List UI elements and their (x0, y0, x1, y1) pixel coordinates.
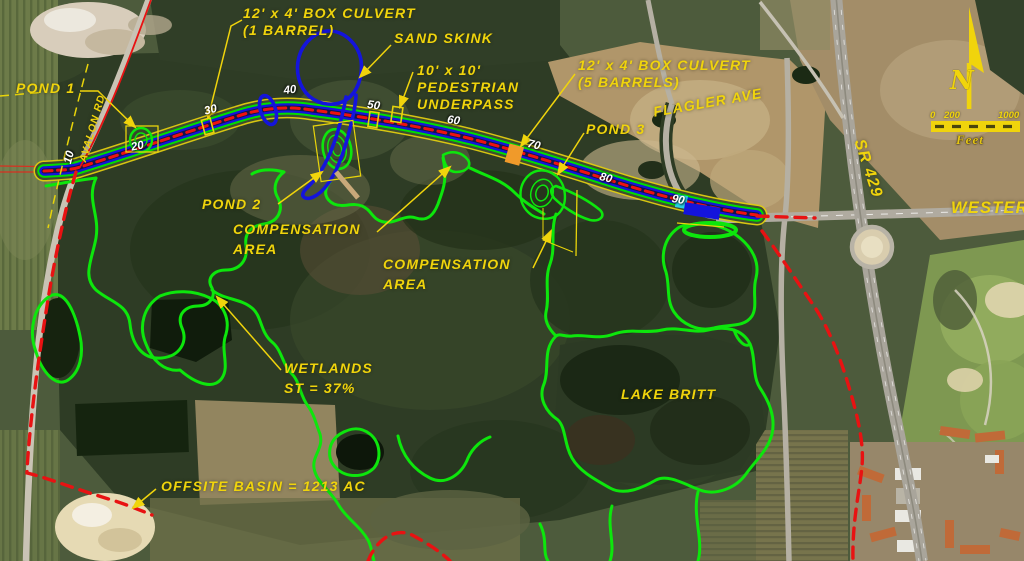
label-sand-skink: SAND SKINK (394, 30, 493, 47)
scale-tick-200: 200 (944, 110, 960, 121)
station-70: 70 (526, 138, 541, 153)
label-pond-3: POND 3 (586, 121, 645, 138)
scale-tick-1000: 1000 (998, 110, 1019, 121)
label-box-culvert-5-line1: 12' x 4' BOX CULVERT (578, 57, 751, 74)
north-arrow-letter: N (950, 66, 974, 96)
label-ped-underpass-line2: PEDESTRIAN (417, 79, 519, 96)
label-lake-britt: LAKE BRITT (621, 386, 716, 403)
label-comp-area-1-line2: AREA (233, 241, 277, 258)
label-box-culvert-5-line2: (5 BARRELS) (578, 74, 680, 91)
aerial-project-map: 12' x 4' BOX CULVERT (1 BARREL) SAND SKI… (0, 0, 1024, 561)
scale-unit-feet: Feet (956, 132, 984, 148)
station-50: 50 (367, 99, 381, 112)
label-box-culvert-1-line1: 12' x 4' BOX CULVERT (243, 5, 416, 22)
label-comp-area-2-line2: AREA (383, 276, 427, 293)
scale-tick-0: 0 (930, 110, 935, 121)
scale-bar (931, 121, 1020, 132)
label-western: WESTERN (951, 200, 1024, 217)
label-ped-underpass-line3: UNDERPASS (417, 96, 515, 113)
label-wetlands-line2: ST = 37% (284, 380, 355, 397)
label-ped-underpass-line1: 10' x 10' (417, 62, 481, 79)
label-pond-2: POND 2 (202, 196, 261, 213)
label-comp-area-2-line1: COMPENSATION (383, 256, 511, 273)
label-wetlands-line1: WETLANDS (284, 360, 373, 377)
label-comp-area-1-line1: COMPENSATION (233, 221, 361, 238)
station-60: 60 (446, 114, 460, 128)
label-pond-1: POND 1 (16, 80, 75, 97)
label-offsite-basin: OFFSITE BASIN = 1213 AC (161, 478, 366, 495)
label-box-culvert-1-line2: (1 BARREL) (243, 22, 334, 39)
station-40: 40 (283, 84, 297, 97)
station-90: 90 (671, 193, 686, 207)
